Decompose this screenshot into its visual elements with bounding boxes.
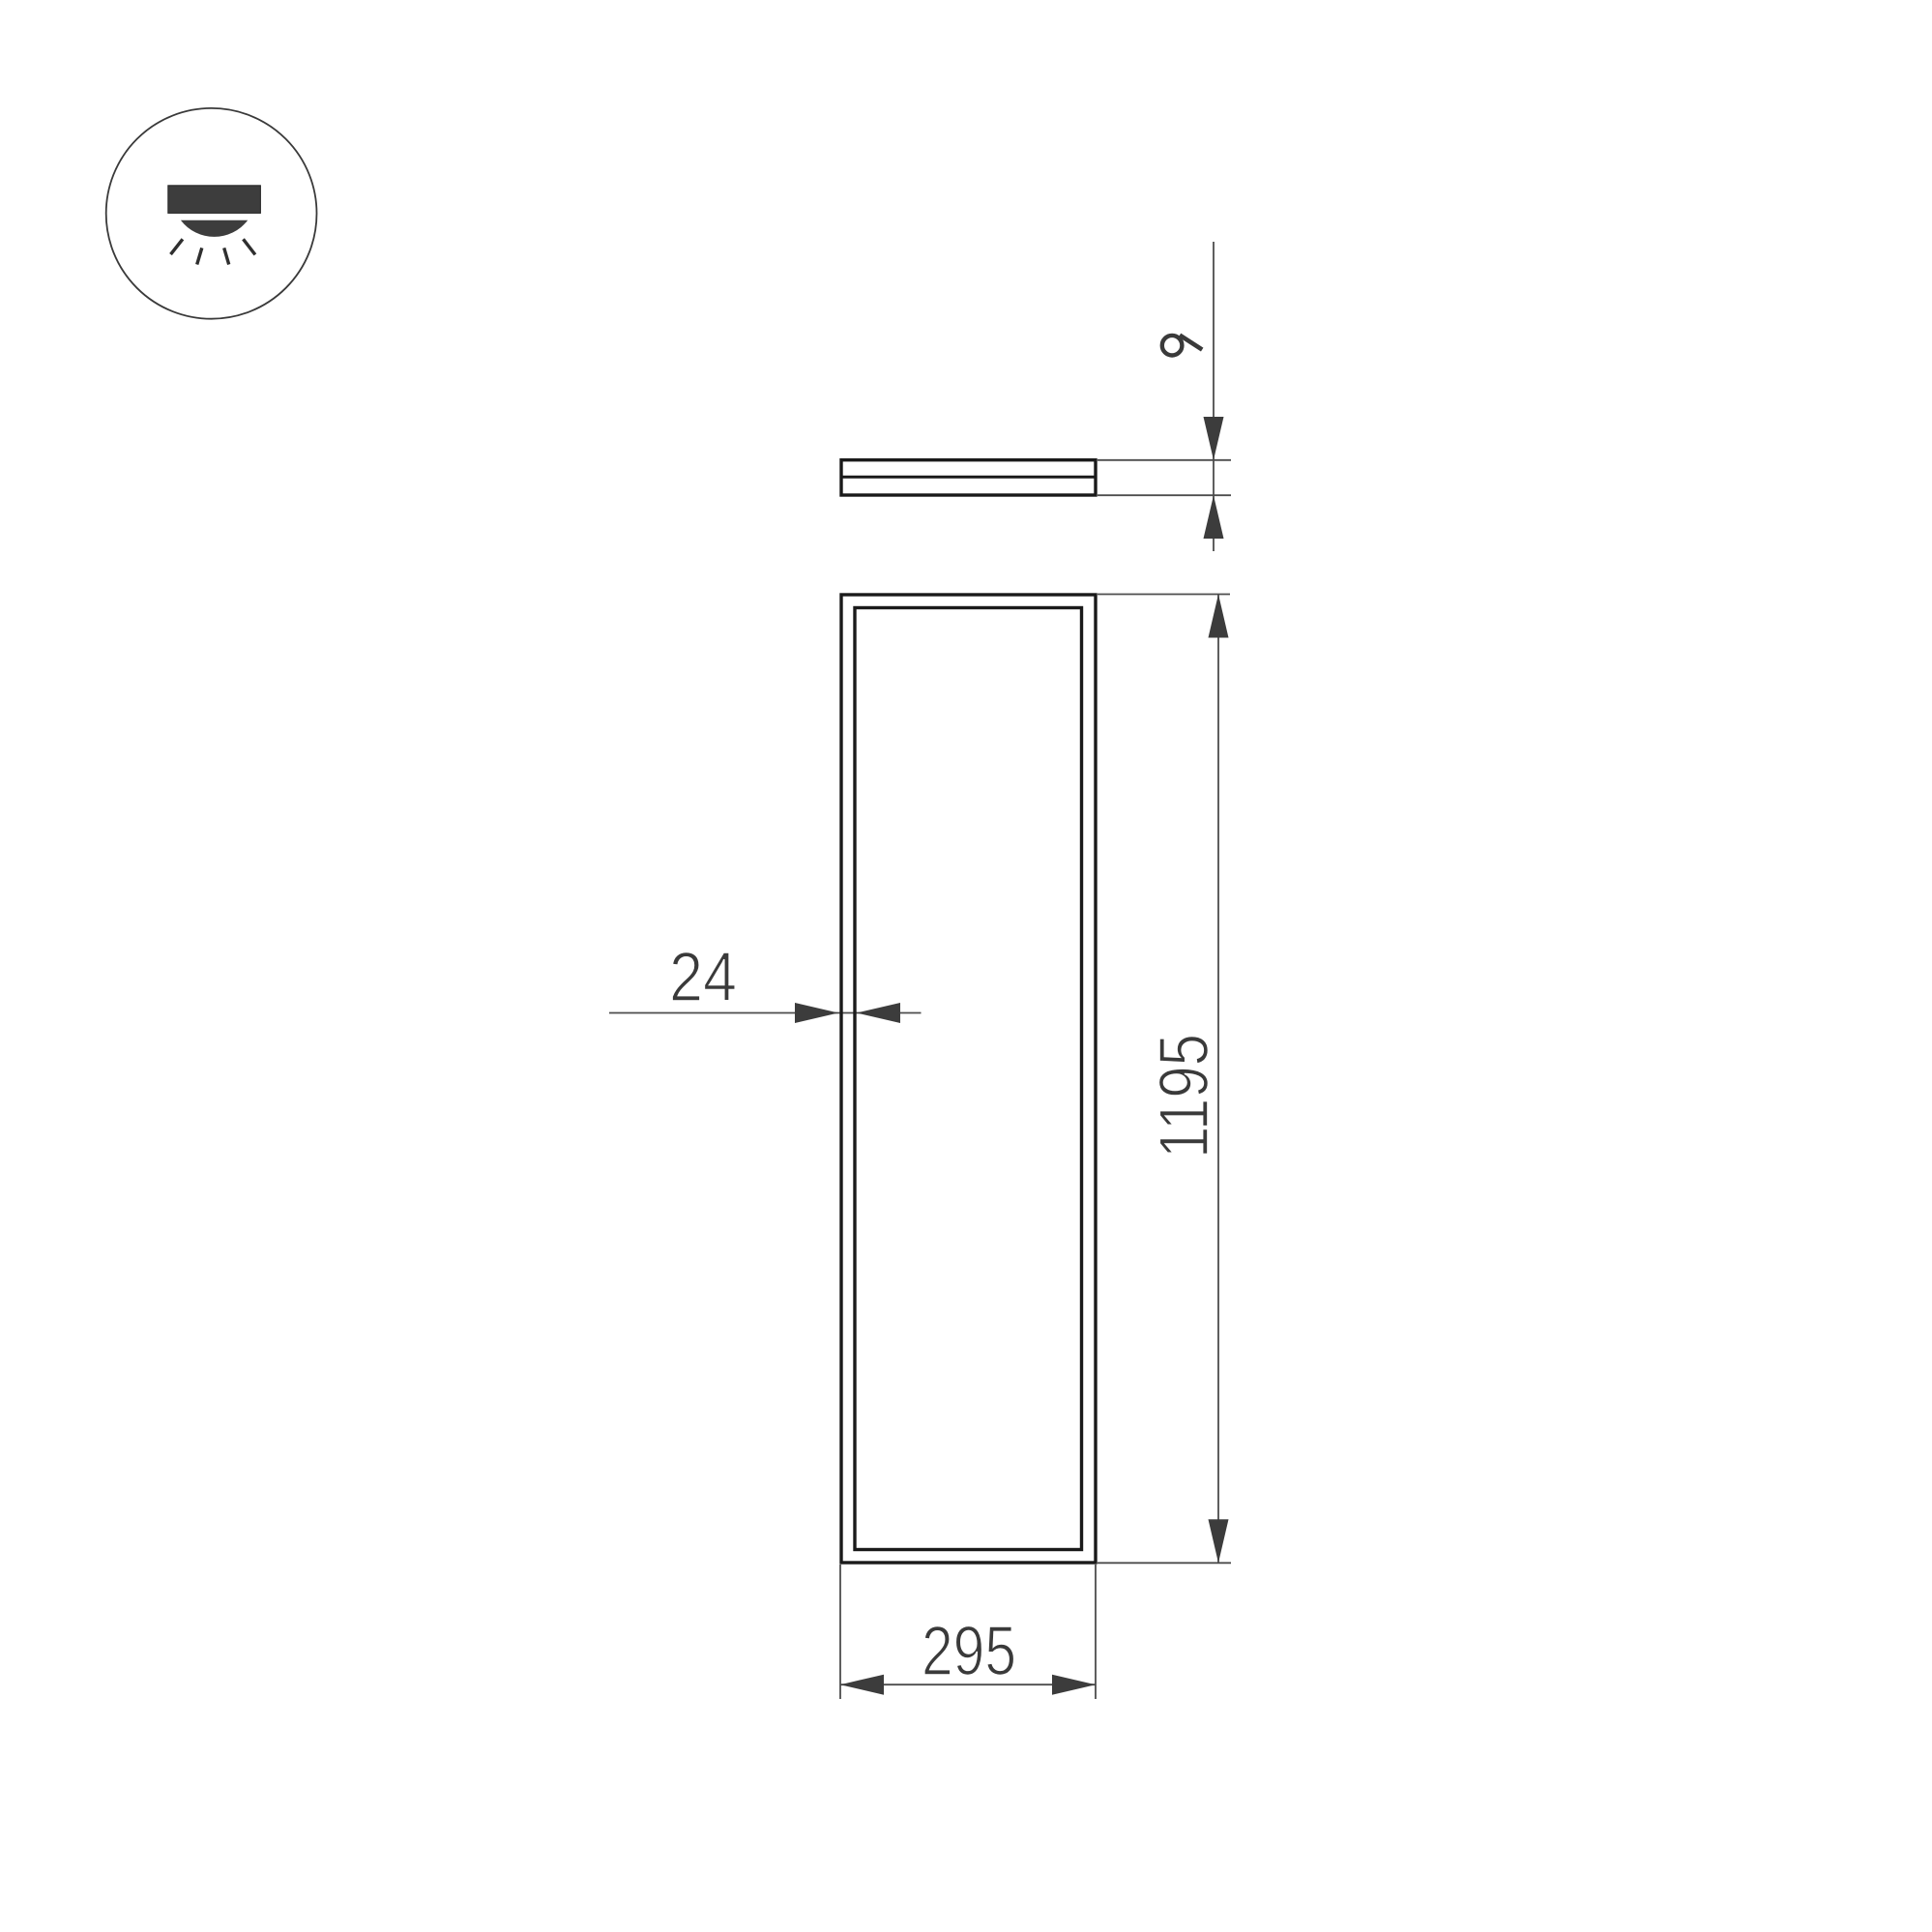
- svg-text:24: 24: [669, 939, 737, 1016]
- svg-text:295: 295: [922, 1613, 1016, 1690]
- svg-text:1195: 1195: [1146, 1034, 1223, 1158]
